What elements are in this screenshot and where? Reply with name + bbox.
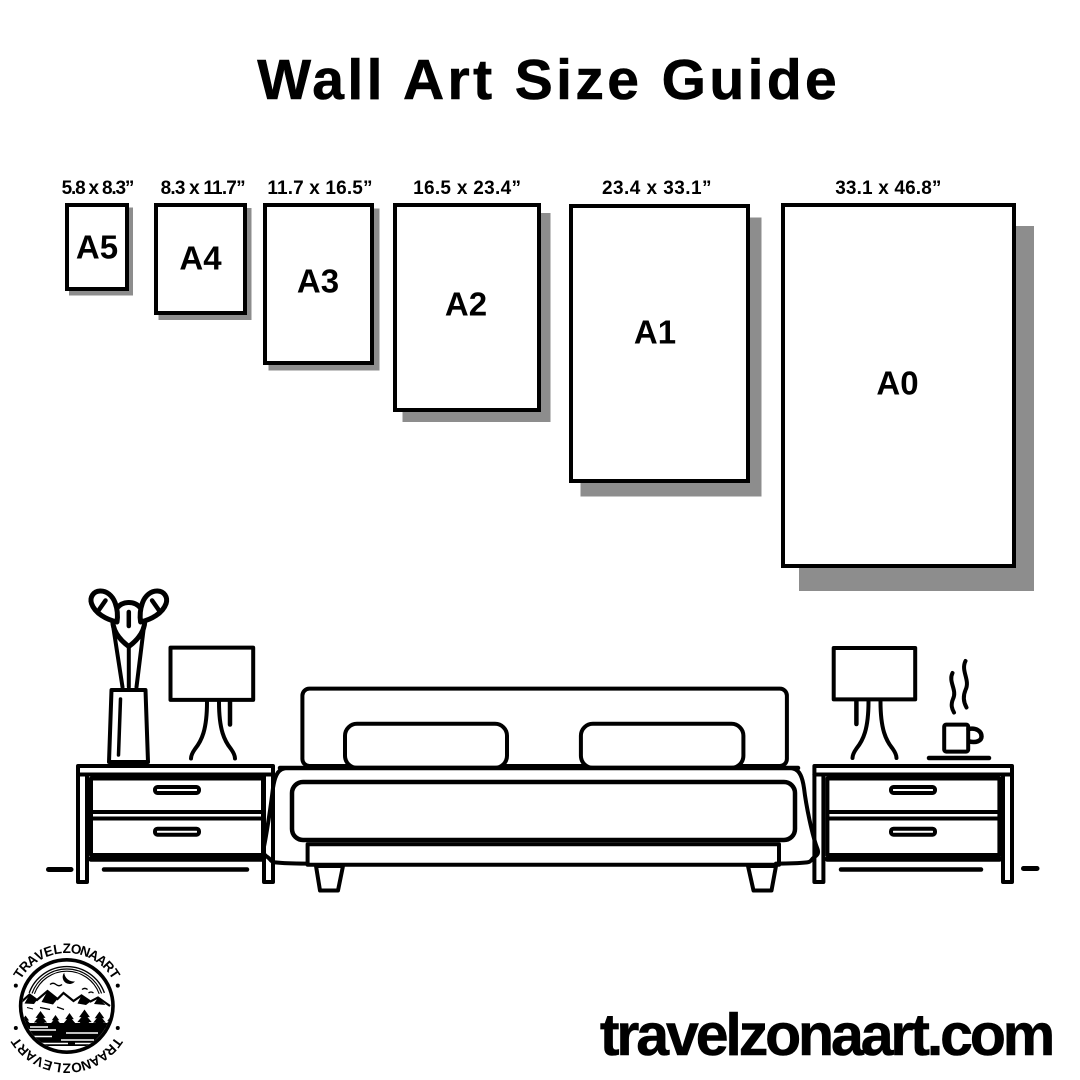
svg-text:Z: Z (63, 1061, 71, 1076)
svg-text:L: L (52, 941, 63, 957)
